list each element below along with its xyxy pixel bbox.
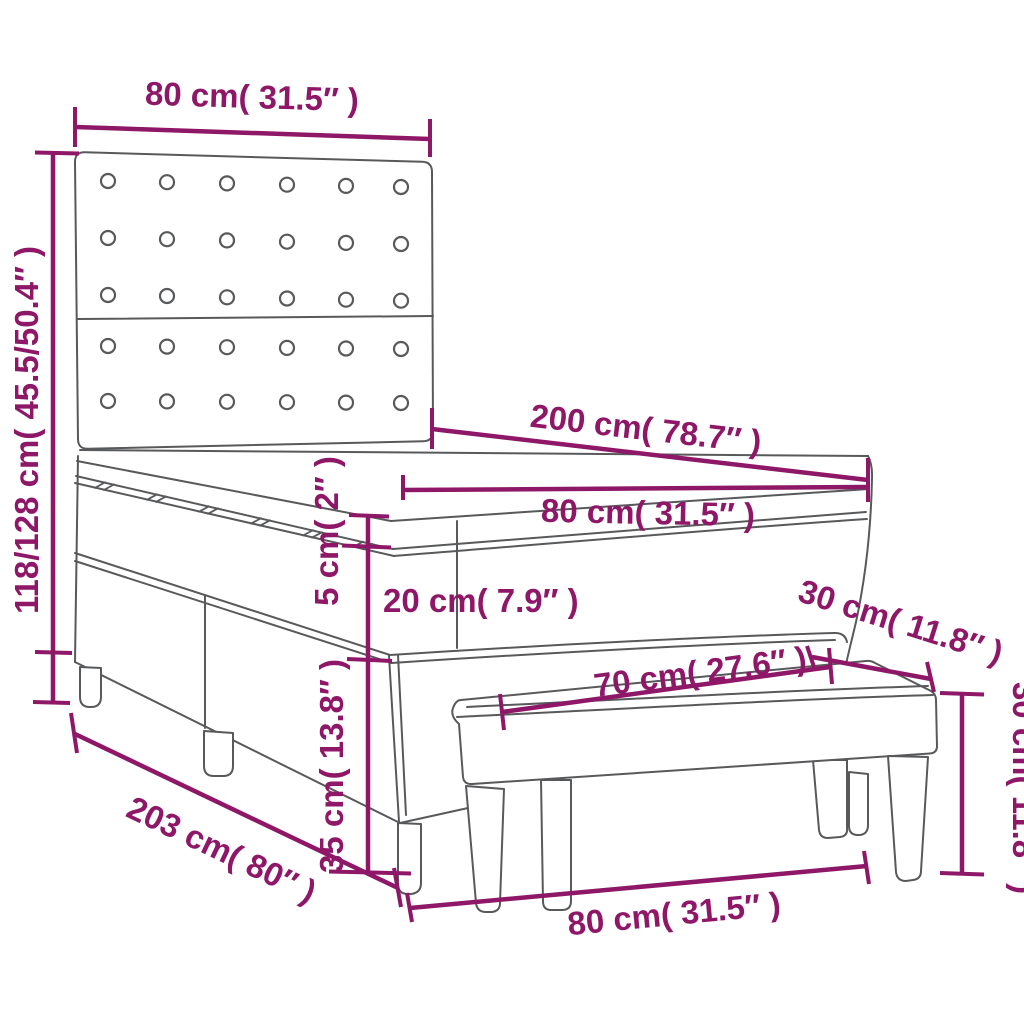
base-bottom-front-edge: [75, 662, 400, 823]
bed-leg-foot-back: [849, 772, 868, 835]
bed-length-label: 200 cm( 78.7″ ): [528, 397, 763, 460]
dim-bench-height: [940, 693, 984, 875]
base-corner-piping: [389, 656, 399, 822]
bed-dimension-drawing: 80 cm( 31.5″ ) 118/128 cm( 45.5/50.4″ ) …: [0, 0, 1024, 1024]
headboard: [75, 152, 433, 448]
tufting-buttons: [101, 174, 408, 410]
topper-thickness-label: 5 cm( 2″ ): [308, 456, 345, 606]
footprint-width-label: 80 cm( 31.5″ ): [566, 885, 782, 942]
bench-leg-front-right: [888, 756, 928, 881]
bench-leg-back-right: [813, 760, 847, 838]
base-height-label: 35 cm( 13.8″ ): [313, 659, 350, 873]
headboard-width-label: 80 cm( 31.5″ ): [144, 75, 359, 119]
bench-depth-label: 30 cm( 11.8″ ): [794, 572, 1007, 671]
bench-leg-front-left: [466, 786, 504, 912]
bed-leg-head: [80, 667, 101, 707]
total-length-label: 203 cm( 80″ ): [121, 789, 322, 911]
bench-leg-back-left: [541, 780, 571, 910]
product-dimension-diagram: 80 cm( 31.5″ ) 118/128 cm( 45.5/50.4″ ) …: [0, 0, 1024, 1024]
bed-leg-foot-front: [398, 823, 421, 894]
mattress-thickness-label: 20 cm( 7.9″ ): [383, 582, 579, 619]
headboard-height-label: 118/128 cm( 45.5/50.4″ ): [8, 246, 45, 614]
headboard-panel-seam: [77, 316, 433, 319]
mattress-topper: [75, 450, 872, 662]
bed-left-edge: [75, 456, 78, 662]
bench-height-label: 30 cm( 11.8″ ): [1006, 682, 1024, 894]
mattress-width-label: 80 cm( 31.5″ ): [541, 492, 756, 533]
bed-leg-middle: [204, 731, 233, 776]
base-bottom-foot-edge: [400, 808, 468, 823]
